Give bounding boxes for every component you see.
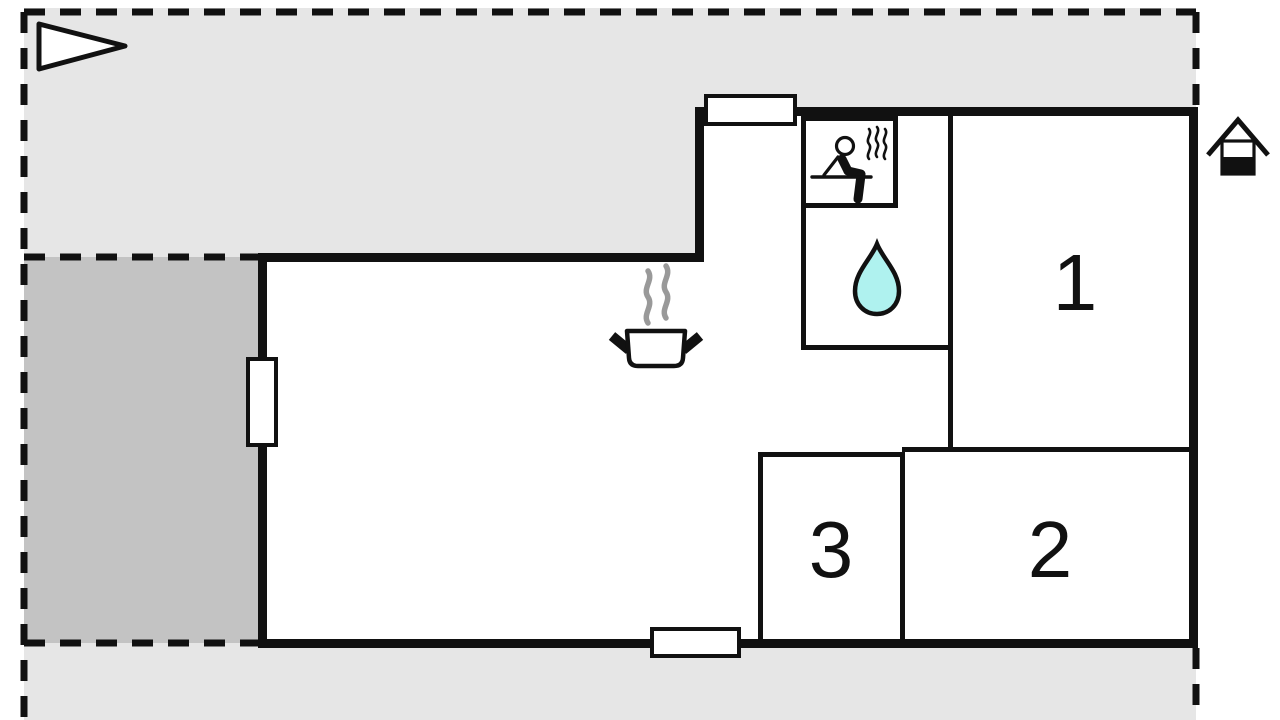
wall-room3-left <box>758 452 763 639</box>
room-1-label: 1 <box>1053 238 1098 327</box>
pot-body <box>627 331 685 366</box>
wall-room2-room3-divider <box>900 452 905 639</box>
window-bottom <box>652 629 739 656</box>
terrace-left <box>24 257 258 643</box>
wall-mid <box>258 253 704 262</box>
pot-steam-1 <box>646 271 649 323</box>
window-top <box>706 96 795 124</box>
sauna-cabin <box>804 119 896 206</box>
wall-room3-top <box>758 452 905 457</box>
house-door <box>1222 157 1254 174</box>
floor-plan: 1 2 3 <box>0 0 1280 720</box>
room-3-label: 3 <box>809 505 854 594</box>
floor-plan-canvas: 1 2 3 <box>0 0 1280 720</box>
wall-upper-left <box>695 107 704 262</box>
window-left <box>248 359 276 445</box>
pot-steam-2 <box>664 266 667 318</box>
house-entrance-icon <box>1208 120 1268 174</box>
sauna-person-head <box>837 138 854 155</box>
wall-bathroom-bottom <box>801 345 953 350</box>
wall-room1-bottom <box>902 447 1189 452</box>
wall-left <box>258 253 267 648</box>
wall-right <box>1189 107 1198 648</box>
plot-area-bottom <box>24 643 1196 720</box>
room-2-label: 2 <box>1028 505 1073 594</box>
wall-room1-left <box>948 116 953 452</box>
